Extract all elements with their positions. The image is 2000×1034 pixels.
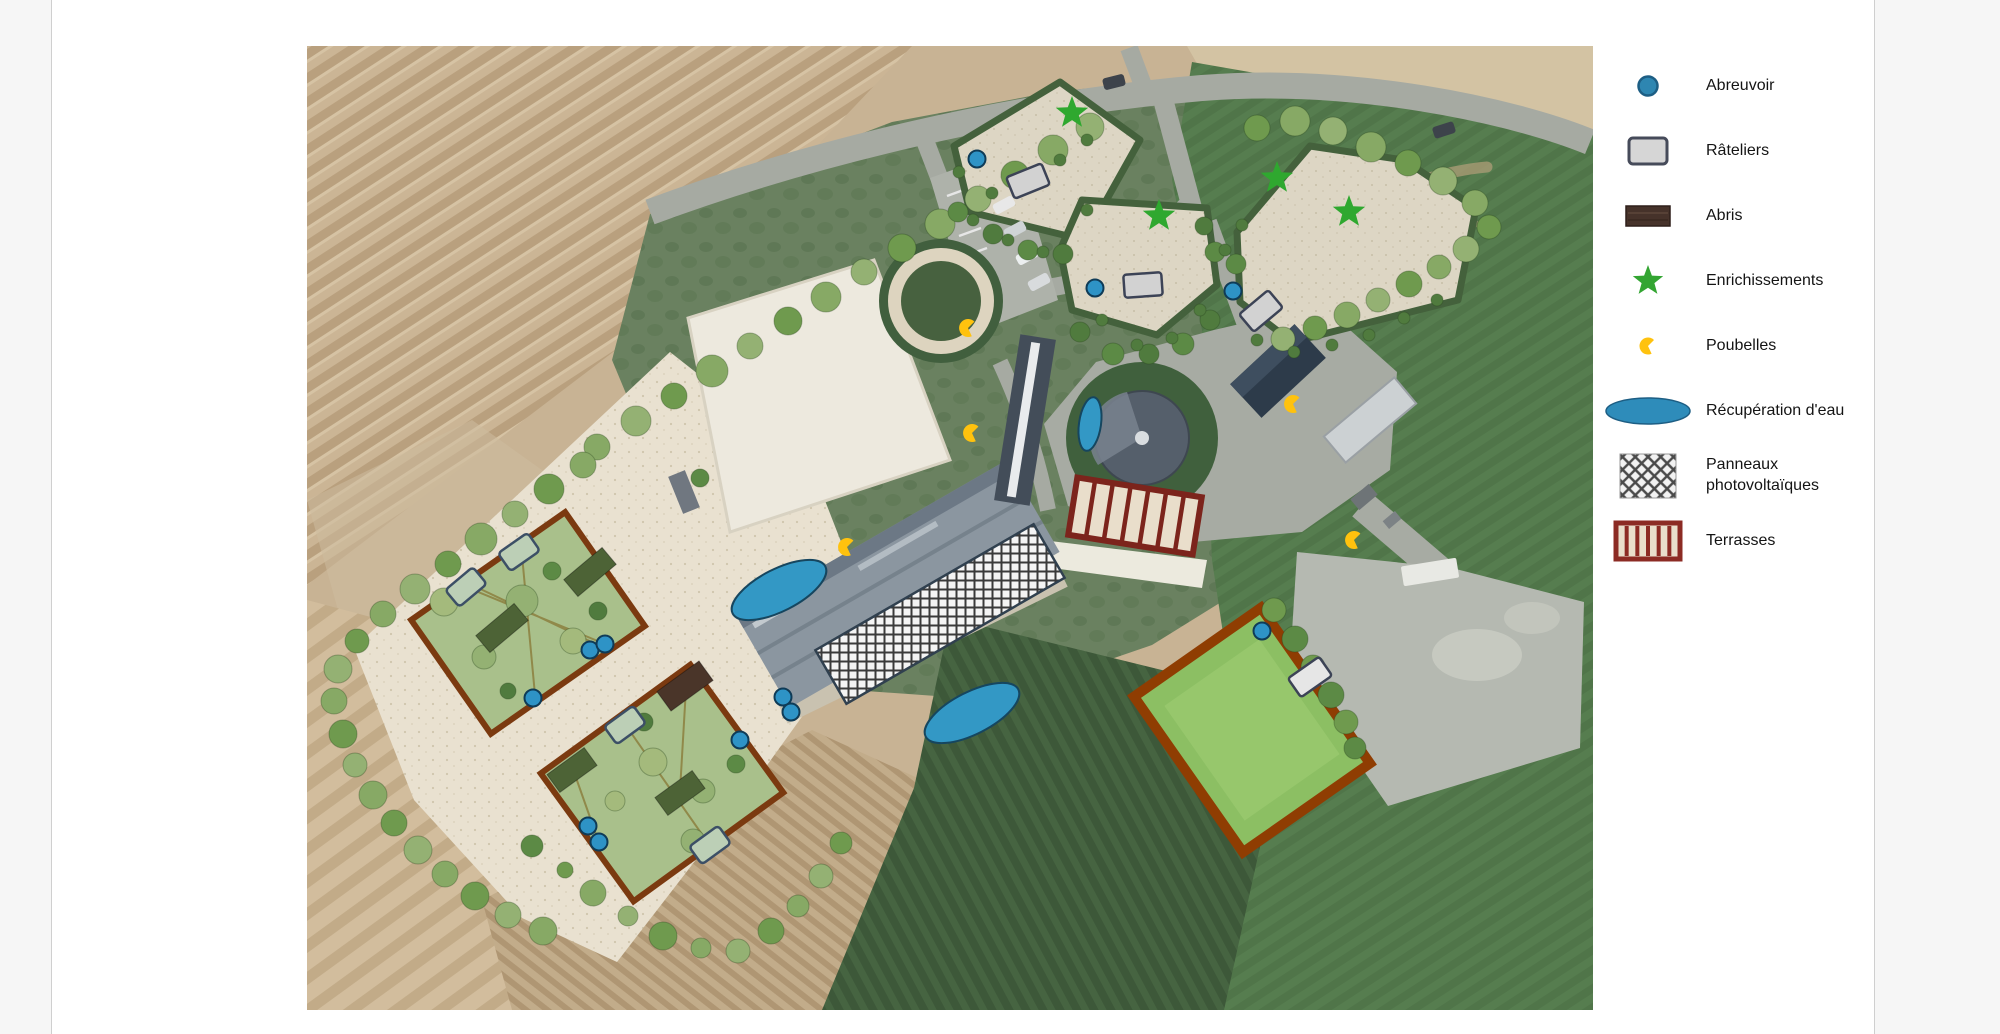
tree bbox=[1131, 339, 1143, 351]
tree bbox=[1195, 217, 1213, 235]
site-map bbox=[307, 46, 1593, 1010]
tree bbox=[691, 938, 711, 958]
tree bbox=[1344, 737, 1366, 759]
tree bbox=[1194, 304, 1206, 316]
enrichissements-icon bbox=[1600, 257, 1696, 305]
tree bbox=[1319, 117, 1347, 145]
water-trough-marker bbox=[580, 818, 597, 835]
tree bbox=[1366, 288, 1390, 312]
tree bbox=[1453, 236, 1479, 262]
tree bbox=[953, 166, 965, 178]
tree bbox=[1318, 682, 1344, 708]
tree bbox=[811, 282, 841, 312]
tree bbox=[1288, 346, 1300, 358]
tree bbox=[986, 187, 998, 199]
tree bbox=[1054, 154, 1066, 166]
legend-label-poubelles: Poubelles bbox=[1706, 336, 1776, 357]
tree bbox=[465, 523, 497, 555]
tree bbox=[851, 259, 877, 285]
legend-label-recuperation-eau: Récupération d'eau bbox=[1706, 401, 1844, 422]
legend-label-enrichissements: Enrichissements bbox=[1706, 271, 1823, 292]
tree bbox=[589, 602, 607, 620]
tree bbox=[570, 452, 596, 478]
tree bbox=[359, 781, 387, 809]
water-trough-marker bbox=[591, 834, 608, 851]
tree bbox=[432, 861, 458, 887]
tree bbox=[830, 832, 852, 854]
tree bbox=[1431, 294, 1443, 306]
tree bbox=[580, 880, 606, 906]
tree bbox=[1219, 244, 1231, 256]
tree bbox=[370, 601, 396, 627]
tree bbox=[529, 917, 557, 945]
tree bbox=[1002, 234, 1014, 246]
tree bbox=[691, 469, 709, 487]
water-trough-marker bbox=[783, 704, 800, 721]
tree bbox=[1081, 204, 1093, 216]
tree bbox=[1166, 332, 1178, 344]
legend-item-rateliers: Râteliers bbox=[1600, 127, 1930, 175]
legend-item-abris: Abris bbox=[1600, 192, 1930, 240]
tree bbox=[605, 791, 625, 811]
tree bbox=[521, 835, 543, 857]
tree bbox=[1070, 322, 1090, 342]
tree bbox=[774, 307, 802, 335]
tree bbox=[1280, 106, 1310, 136]
tree bbox=[400, 574, 430, 604]
tree bbox=[967, 214, 979, 226]
tree bbox=[639, 748, 667, 776]
tree bbox=[661, 383, 687, 409]
tree bbox=[502, 501, 528, 527]
tree bbox=[726, 939, 750, 963]
tree bbox=[1398, 312, 1410, 324]
panneaux-photovoltaiques-icon bbox=[1600, 452, 1696, 500]
legend-item-recuperation-eau: Récupération d'eau bbox=[1600, 387, 1930, 435]
water-trough-marker bbox=[1225, 283, 1242, 300]
legend-item-panneaux-photovoltaiques: Panneaux photovoltaïques bbox=[1600, 452, 1930, 500]
rateliers-icon bbox=[1600, 127, 1696, 175]
tree bbox=[1244, 115, 1270, 141]
tree bbox=[888, 234, 916, 262]
tree bbox=[461, 882, 489, 910]
tree bbox=[948, 202, 968, 222]
tree bbox=[649, 922, 677, 950]
tree bbox=[543, 562, 561, 580]
tree bbox=[500, 683, 516, 699]
tree bbox=[404, 836, 432, 864]
tree bbox=[1395, 150, 1421, 176]
tree bbox=[727, 755, 745, 773]
legend-item-enrichissements: Enrichissements bbox=[1600, 257, 1930, 305]
tree bbox=[1427, 255, 1451, 279]
tree bbox=[1396, 271, 1422, 297]
tree bbox=[495, 902, 521, 928]
legend-item-abreuvoir: Abreuvoir bbox=[1600, 62, 1930, 110]
tree bbox=[1429, 167, 1457, 195]
water-trough-marker bbox=[1254, 623, 1271, 640]
tree bbox=[1226, 254, 1246, 274]
tree bbox=[1334, 302, 1360, 328]
water-trough-marker bbox=[1087, 280, 1104, 297]
tree bbox=[1262, 598, 1286, 622]
tree bbox=[557, 862, 573, 878]
tree bbox=[809, 864, 833, 888]
tree bbox=[621, 406, 651, 436]
tree bbox=[737, 333, 763, 359]
tree bbox=[534, 474, 564, 504]
legend-label-rateliers: Râteliers bbox=[1706, 141, 1769, 162]
water-trough-marker bbox=[597, 636, 614, 653]
legend-label-panneaux-photovoltaiques: Panneaux photovoltaïques bbox=[1706, 455, 1891, 497]
tree bbox=[1282, 626, 1308, 652]
abreuvoir-icon bbox=[1600, 62, 1696, 110]
terrasses-icon bbox=[1600, 517, 1696, 565]
legend-item-poubelles: Poubelles bbox=[1600, 322, 1930, 370]
legend-item-terrasses: Terrasses bbox=[1600, 517, 1930, 565]
poubelles-icon bbox=[1600, 322, 1696, 370]
tree bbox=[618, 906, 638, 926]
tree bbox=[983, 224, 1003, 244]
tree bbox=[435, 551, 461, 577]
tree bbox=[321, 688, 347, 714]
tree bbox=[1326, 339, 1338, 351]
tree bbox=[345, 629, 369, 653]
tree bbox=[1102, 343, 1124, 365]
legend-label-abreuvoir: Abreuvoir bbox=[1706, 76, 1774, 97]
tree bbox=[1018, 240, 1038, 260]
water-trough-marker bbox=[732, 732, 749, 749]
tree bbox=[1477, 215, 1501, 239]
tree bbox=[1081, 134, 1093, 146]
tree bbox=[381, 810, 407, 836]
page: { "page": { "background": "#f6f6f6", "ca… bbox=[0, 0, 2000, 1034]
tree bbox=[787, 895, 809, 917]
map-legend: AbreuvoirRâteliersAbrisEnrichissementsPo… bbox=[1600, 62, 1930, 565]
site-map-svg bbox=[307, 46, 1593, 1010]
tree bbox=[1334, 710, 1358, 734]
tree bbox=[1462, 190, 1488, 216]
tree bbox=[696, 355, 728, 387]
tree bbox=[329, 720, 357, 748]
content-card: AbreuvoirRâteliersAbrisEnrichissementsPo… bbox=[51, 0, 1875, 1034]
tree bbox=[1053, 244, 1073, 264]
tree bbox=[324, 655, 352, 683]
recuperation-eau-icon bbox=[1600, 387, 1696, 435]
tree bbox=[1096, 314, 1108, 326]
tree bbox=[1251, 334, 1263, 346]
hay-rack-marker bbox=[1123, 272, 1163, 298]
abris-icon bbox=[1600, 192, 1696, 240]
water-trough-marker bbox=[525, 690, 542, 707]
tree bbox=[1303, 316, 1327, 340]
tree bbox=[1037, 246, 1049, 258]
legend-label-terrasses: Terrasses bbox=[1706, 531, 1775, 552]
tree bbox=[1356, 132, 1386, 162]
tree bbox=[758, 918, 784, 944]
legend-list: AbreuvoirRâteliersAbrisEnrichissementsPo… bbox=[1600, 62, 1930, 565]
tree bbox=[1236, 219, 1248, 231]
tree bbox=[1363, 329, 1375, 341]
water-trough-marker bbox=[969, 151, 986, 168]
legend-label-abris: Abris bbox=[1706, 206, 1742, 227]
tree bbox=[343, 753, 367, 777]
